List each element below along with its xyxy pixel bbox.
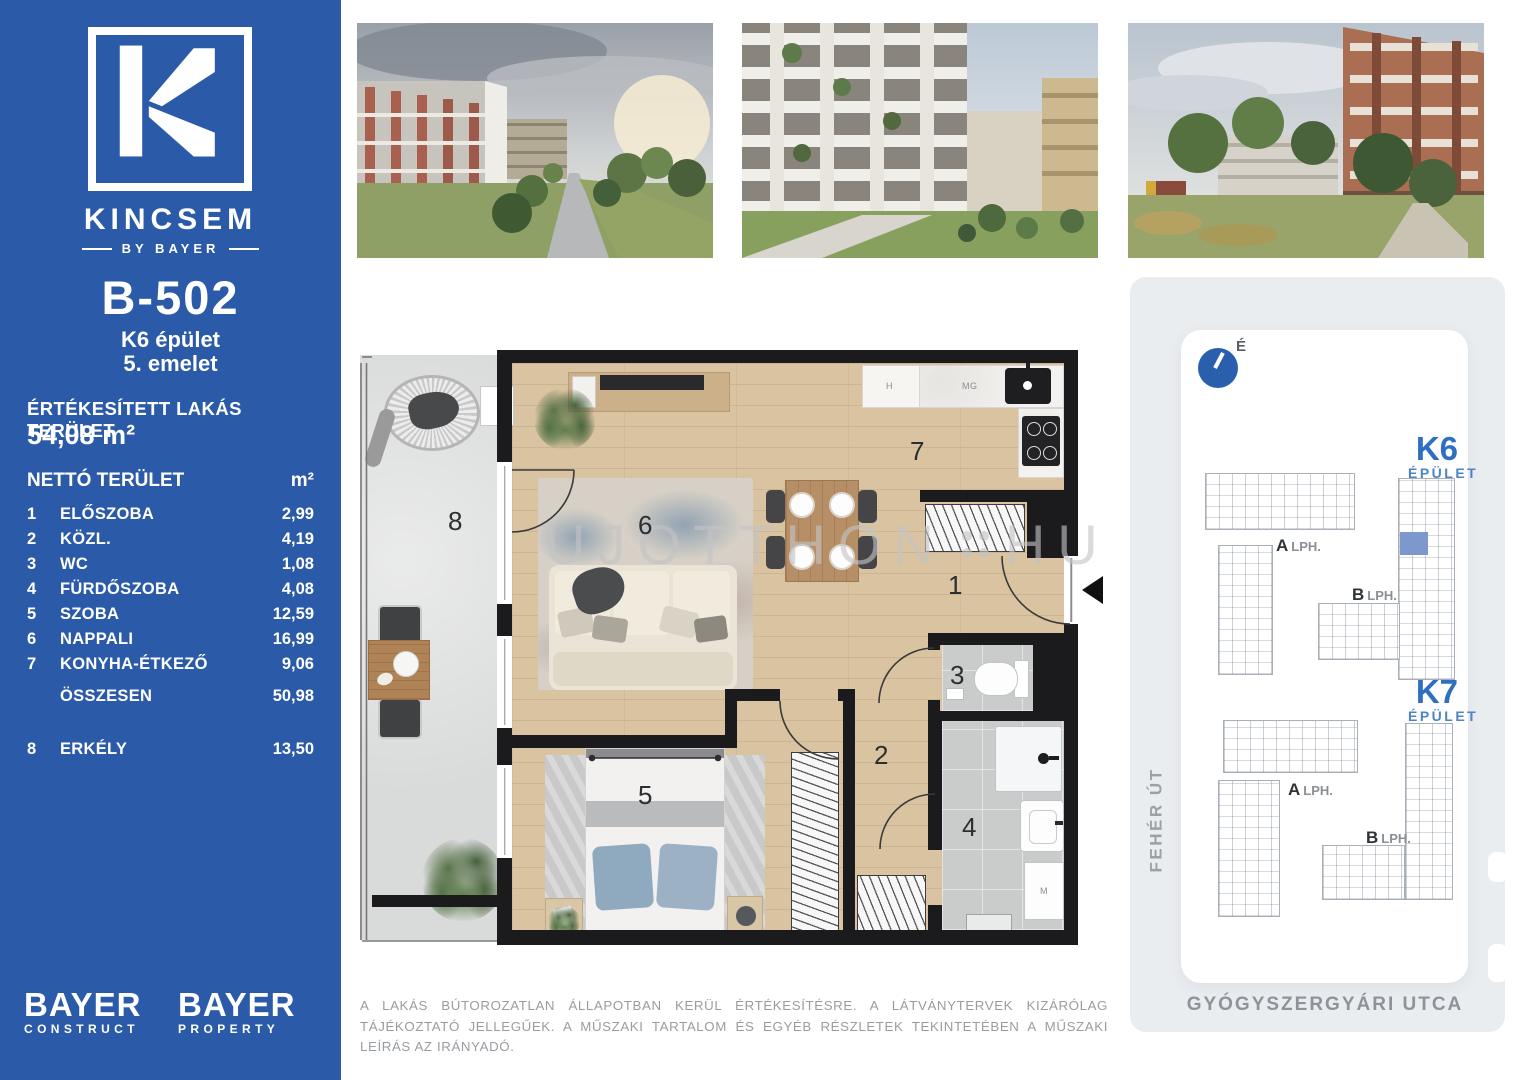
bedroom-wardrobe [791, 752, 839, 936]
flyer-page: KINCSEM BY BAYER B-502 K6 épület 5. emel… [0, 0, 1527, 1080]
wall [497, 735, 725, 748]
table-row: 1 ELŐSZOBA 2,99 [27, 505, 314, 529]
living-window [497, 636, 512, 728]
microwave-label: MG [962, 381, 978, 391]
table-row: 2 KÖZL. 4,19 [27, 530, 314, 554]
washing-machine: M [1024, 862, 1064, 920]
sold-area-value: 54,08 m² [27, 420, 317, 451]
north-label: É [1236, 338, 1246, 355]
k7-a-lph: ALPH. [1288, 780, 1333, 800]
room-label-szoba: 5 [638, 780, 652, 811]
panel-notch [1488, 852, 1508, 882]
unit-building: K6 épület [0, 327, 341, 353]
k7-b-lph: BLPH. [1366, 828, 1411, 848]
bed [585, 748, 725, 934]
tv [600, 375, 704, 390]
net-table-title: NETTÓ TERÜLET [27, 470, 184, 492]
disclaimer-text: A LAKÁS BÚTOROZATLAN ÁLLAPOTBAN KERÜL ÉR… [360, 996, 1108, 1058]
panel-notch [1488, 944, 1508, 982]
room-label-eloszoba: 1 [948, 570, 962, 601]
room-label-furdoszoba: 4 [962, 812, 976, 843]
byline-rule-right [229, 248, 259, 250]
sidebar: KINCSEM BY BAYER B-502 K6 épület 5. emel… [0, 0, 341, 1080]
hall-shoe-cabinet [857, 875, 926, 936]
wall [928, 633, 1064, 645]
wall [843, 701, 855, 930]
north-compass-icon [1198, 348, 1238, 388]
k6-wing-top [1205, 473, 1355, 530]
wall [838, 689, 855, 701]
k7-wing-b [1322, 845, 1405, 900]
brand-byline: BY BAYER [0, 241, 341, 256]
cooktop [1022, 416, 1060, 466]
balcony-door-opening [497, 462, 512, 604]
unit-floor: 5. emelet [0, 351, 341, 377]
table-row: 7 KONYHA-ÉTKEZŐ 9,06 [27, 655, 314, 679]
photo-railside-render [1128, 23, 1484, 258]
net-table-header: NETTÓ TERÜLET m² [27, 470, 314, 492]
room-label-wc: 3 [950, 660, 964, 691]
plant-balcony [422, 838, 504, 922]
bedroom-window [497, 765, 512, 858]
shower [995, 726, 1062, 792]
bathroom-sink [1020, 800, 1064, 852]
highlighted-unit [1400, 532, 1428, 555]
k6-wing-right [1398, 478, 1455, 680]
net-table-unit: m² [291, 470, 314, 492]
k7-title: K7 ÉPÜLET [1408, 675, 1458, 724]
room-label-konyha: 7 [910, 436, 924, 467]
unit-code: B-502 [0, 270, 341, 325]
entrance-arrow-icon [1082, 576, 1103, 604]
wall [928, 700, 940, 711]
hanging-chair [384, 375, 480, 451]
fridge-label: H [886, 381, 893, 391]
wall [1064, 624, 1078, 945]
balcony-table [368, 640, 430, 700]
balcony-parapet [372, 895, 497, 907]
wall [497, 350, 1078, 363]
byline-text: BY BAYER [122, 241, 220, 256]
table-row: 4 FÜRDŐSZOBA 4,08 [27, 580, 314, 604]
wall [928, 905, 942, 930]
k7-wing-left [1218, 780, 1280, 917]
wall [497, 363, 512, 462]
photo-courtyard-render [742, 23, 1098, 258]
kincsem-logo-icon [88, 27, 252, 191]
k6-a-lph: ALPH. [1276, 536, 1321, 556]
photo-street-render [357, 23, 713, 258]
k6-wing-b [1318, 603, 1400, 660]
kitchen-sink [1005, 368, 1051, 404]
toilet-bowl [974, 662, 1018, 696]
wall [928, 645, 940, 650]
wall [497, 604, 512, 636]
k7-wing-top [1223, 720, 1358, 773]
table-row: 3 WC 1,08 [27, 555, 314, 579]
wall [497, 930, 1078, 945]
wall [928, 711, 1064, 721]
k6-title: K6 ÉPÜLET [1408, 432, 1458, 481]
watermark: ÚJOTTHON HU [545, 512, 1065, 577]
watermark-dots [962, 531, 989, 558]
k7-wing-right [1405, 723, 1453, 900]
wall [920, 490, 1035, 502]
wall [725, 689, 737, 748]
room-label-nappali: 6 [638, 510, 652, 541]
wall [497, 858, 512, 930]
room-label-kozl: 2 [874, 740, 888, 771]
balcony-chair [378, 698, 422, 739]
bayer-construct-logo: BAYER CONSTRUCT [24, 988, 142, 1036]
wall [737, 689, 780, 701]
table-row: 6 NAPPALI 16,99 [27, 630, 314, 654]
table-balcony-row: 8 ERKÉLY 13,50 [27, 740, 314, 764]
brand-name: KINCSEM [0, 203, 341, 237]
table-total-row: ÖSSZESEN 50,98 [27, 687, 314, 711]
nightstand-right [727, 896, 763, 934]
room-label-erkely: 8 [448, 506, 462, 537]
street-feher-ut: FEHÉR ÚT [1136, 740, 1176, 900]
plant-living [534, 388, 596, 450]
k6-b-lph: BLPH. [1352, 585, 1397, 605]
byline-rule-left [82, 248, 112, 250]
bayer-property-logo: BAYER PROPERTY [178, 988, 296, 1036]
street-gyogyszergyari-utca: GYÓGYSZERGYÁRI UTCA [1180, 994, 1470, 1016]
k6-wing-left [1218, 545, 1273, 675]
wall [928, 721, 942, 850]
wall [1033, 645, 1064, 711]
table-row: 5 SZOBA 12,59 [27, 605, 314, 629]
